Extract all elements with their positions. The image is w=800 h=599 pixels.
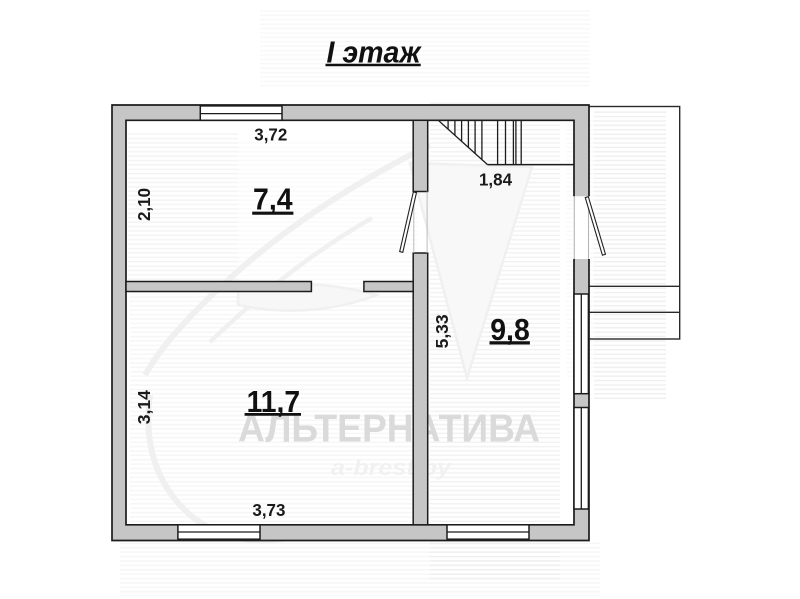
svg-text:a-brest.by: a-brest.by [331,455,453,480]
svg-text:3,14: 3,14 [134,390,154,424]
svg-text:3,72: 3,72 [254,125,287,145]
svg-text:1,84: 1,84 [479,170,512,190]
svg-text:5,33: 5,33 [432,314,452,348]
svg-text:2,10: 2,10 [134,188,154,221]
svg-text:3,73: 3,73 [252,500,285,520]
svg-text:7,4: 7,4 [253,182,293,217]
